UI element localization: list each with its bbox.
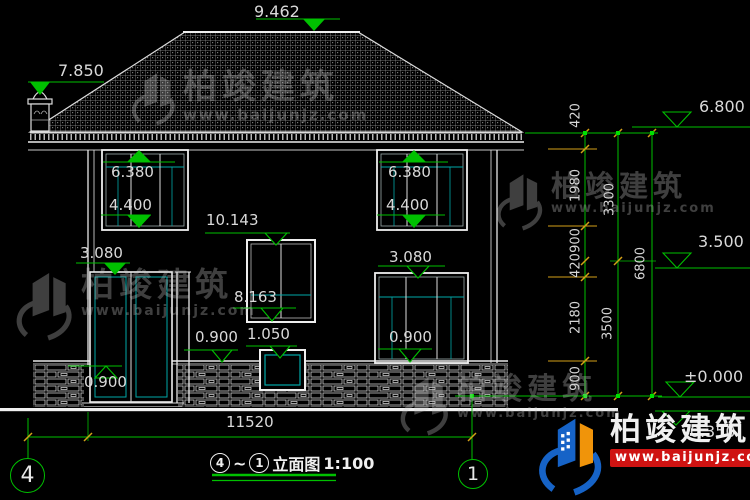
watermark-brand-text: 柏竣建筑 [183, 70, 368, 106]
level-zero: ±0.000 [684, 369, 743, 385]
grid-bubble-4-label: 4 [21, 463, 35, 488]
watermark-brand-text: 柏竣建筑 [81, 268, 256, 303]
title-text: 立面图 [272, 451, 320, 475]
brand-name-text: 柏竣建筑 [610, 414, 750, 447]
small-window [260, 350, 305, 390]
level-mid: 3.500 [698, 234, 744, 250]
watermark-logo-icon [398, 374, 452, 436]
drawing-title: 4 ~ 1 立面图 1:100 [210, 451, 374, 475]
title-underline [212, 475, 336, 481]
dim-gf-window-sill: 0.900 [389, 330, 432, 345]
dim-upper-right-head: 6.380 [388, 165, 431, 180]
brand-watermark: 柏竣建筑 www.baijunjz.com [538, 414, 750, 496]
dim-upper-left-head: 6.380 [111, 165, 154, 180]
dim-upper-right-sill: 4.400 [386, 198, 429, 213]
chain-outer-6800: 6800 [635, 241, 648, 287]
grid-bubble-1-label: 1 [467, 463, 479, 485]
chain-mid-3500: 3500 [602, 301, 615, 347]
elevation-drawing-canvas: 9.462 7.850 6.380 4.400 6.380 4.400 10.1… [0, 0, 750, 500]
dim-left-eave-level: 7.850 [58, 63, 104, 79]
watermark-logo-icon [494, 171, 546, 231]
brand-url-text: www.baijunjz.com [610, 449, 750, 467]
watermark-url-text: www.baijunjz.com [183, 106, 368, 124]
title-tilde: ~ [233, 454, 246, 473]
watermark-right: 柏竣建筑 www.baijunjz.com [494, 171, 716, 231]
watermark-left: 柏竣建筑 www.baijunjz.com [14, 268, 256, 342]
title-axis-to: 1 [249, 453, 269, 473]
watermark-url-text: www.baijunjz.com [551, 201, 716, 217]
dim-door-head: 3.080 [80, 246, 123, 261]
watermark-brand-text: 柏竣建筑 [457, 374, 622, 406]
watermark-roof: 柏竣建筑 www.baijunjz.com [130, 70, 368, 126]
dim-upper-left-sill: 4.400 [109, 198, 152, 213]
grid-bubble-1: 1 [458, 459, 488, 489]
dim-base-left: 0.900 [84, 375, 127, 390]
watermark-brand-text: 柏竣建筑 [551, 171, 716, 201]
chain-inner-420a: 420 [570, 93, 583, 139]
dim-overall-width: 11520 [226, 415, 274, 430]
watermark-url-text: www.baijunjz.com [81, 303, 256, 320]
grid-bubble-4: 4 [10, 458, 45, 493]
title-axis-from: 4 [210, 453, 230, 473]
chain-inner-420b: 420 [570, 243, 583, 289]
chain-inner-2180: 2180 [570, 295, 583, 341]
eave-band [28, 133, 524, 150]
watermark-logo-icon [130, 70, 178, 126]
dim-ridge-level: 9.462 [254, 4, 300, 20]
level-right-eave: 6.800 [699, 99, 745, 115]
brand-logo-icon [538, 414, 604, 496]
dim-stair-head: 10.143 [206, 213, 259, 228]
title-scale: 1:100 [323, 454, 374, 473]
watermark-logo-icon [14, 268, 76, 342]
dim-gf-window-head: 3.080 [389, 250, 432, 265]
